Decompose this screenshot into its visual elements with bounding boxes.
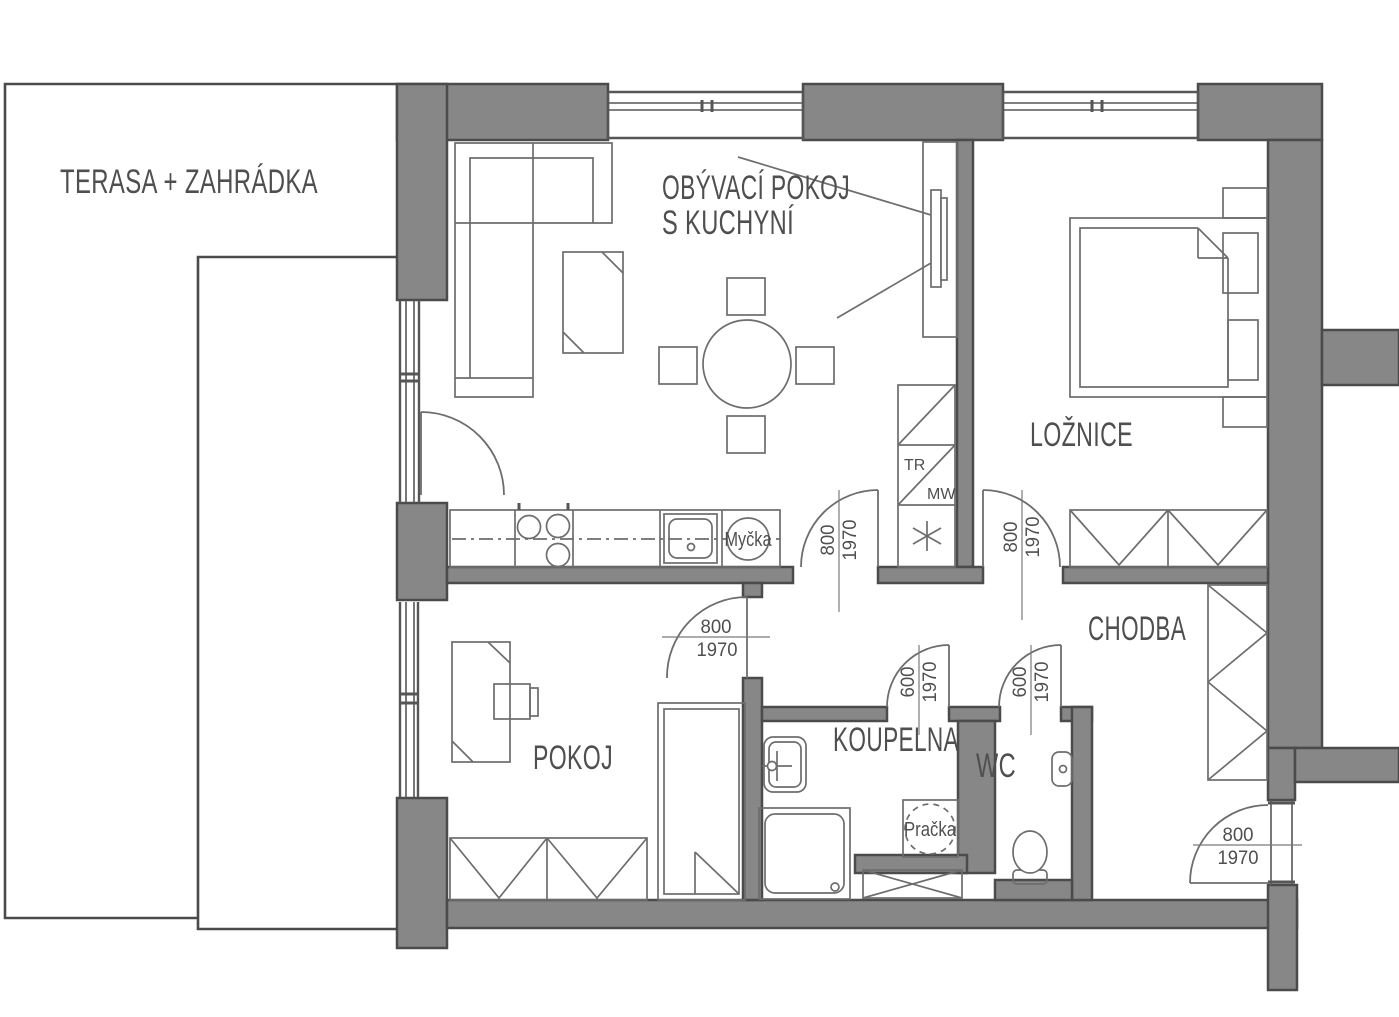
wall-bath-top-b [949,707,1000,721]
tall-unit-mw-label: MW [927,486,956,503]
bathroom-sink [762,737,806,792]
wall-right-stub-upper [1322,330,1399,385]
dim-entry-height: 1970 [1218,848,1259,869]
wc-label: WC [976,747,1016,785]
terrace-label: TERASA + ZAHRÁDKA [60,163,318,201]
single-bed [658,703,745,900]
dishwasher-label: Myčka [725,529,773,551]
terrace-garden: TERASA + ZAHRÁDKA [5,84,397,929]
door-pokoj: 800 1970 [662,597,770,678]
wall-right-main [1268,140,1322,748]
bedroom-wardrobe [1070,510,1267,567]
wall-bedroom-hall [1063,567,1268,583]
sink-tap [768,762,777,771]
washing-machine: Pračka [903,800,958,857]
wall-top-c [1198,84,1322,140]
terrace-door [421,412,504,495]
nightstand-bottom [1223,397,1267,427]
wall-bottom [447,900,1297,928]
wall-right-stub-lower [1295,748,1399,782]
dim-pokoj-width: 800 [701,617,732,638]
nightstand-top [1223,188,1267,218]
tv-back [941,198,947,280]
window-pokoj [399,602,418,797]
dim-pokoj-height: 1970 [697,640,738,661]
dining-table [703,320,791,408]
chair-bottom [727,416,765,453]
dim-bath-width: 600 [898,667,919,698]
terrace-outline [198,257,397,929]
dim-entry-width: 800 [1223,825,1254,846]
fridge-symbol [913,521,941,551]
dim-bath-height: 1970 [920,662,941,703]
window-bedroom-top [1003,92,1198,140]
cooktop [518,515,570,567]
wall-bath-top-a [762,707,887,721]
door-living-hall: 800 1970 [801,490,878,612]
hall-wardrobe [1208,585,1267,780]
tv-leader-lower [837,263,931,318]
door-bedroom: 800 1970 [983,490,1060,620]
living-room-label-line1: OBÝVACÍ POKOJ [662,169,850,207]
pokoj-wardrobe [450,838,647,900]
wall-right-below-entry [1268,885,1297,990]
dim-living-hall-height: 1970 [840,520,861,561]
dim-bedroom-height: 1970 [1023,517,1044,558]
window-terrace-door [399,300,419,503]
dim-living-hall-width: 800 [818,525,839,556]
shower-drain [831,883,839,891]
window-living-top [608,92,803,140]
wall-pokoj-stub [743,583,762,597]
chair-top [727,278,765,315]
wall-left-upper [397,84,447,300]
wall-left-mid [397,503,447,600]
coffee-table [563,252,623,353]
living-room-label-line2: S KUCHYNÍ [662,204,794,242]
wall-living-hall-b [878,567,983,583]
kitchen-tall-unit: TR MW [898,385,956,567]
hallway-label: CHODBA [1088,610,1186,648]
dim-wc-width: 600 [1010,667,1031,698]
entry-door: 800 1970 [1190,800,1302,885]
wall-bath-wc [958,721,995,873]
floor-plan: TERASA + ZAHRÁDKA [0,0,1399,1017]
wall-right-above-entry [1268,748,1295,800]
desk-chair-back [530,688,538,716]
dim-bedroom-width: 800 [1001,522,1022,553]
washing-machine-label: Pračka [904,819,957,841]
pokoj-label: POKOJ [533,739,613,777]
desk-chair [494,684,530,719]
tv-screen [931,190,941,287]
floor-plan-svg: TERASA + ZAHRÁDKA [0,0,1399,1017]
toilet [1013,831,1047,884]
shower [759,808,850,899]
double-bed [1070,218,1267,397]
dim-wc-height: 1970 [1032,662,1053,703]
tall-unit-tr-label: TR [904,457,925,474]
corner-sofa [455,143,612,397]
door-wc: 600 1970 [999,645,1061,735]
pillow-bottom [1228,320,1258,380]
wc-basin [1052,752,1072,786]
desk [452,642,538,762]
chair-left [659,347,697,384]
wall-wc-bottom [995,880,1072,900]
room-labels: OBÝVACÍ POKOJ S KUCHYNÍ LOŽNICE CHODBA P… [533,169,1186,785]
garden-outline [5,84,397,918]
chair-right [796,347,834,384]
wall-top-b [803,84,1003,140]
wall-left-lower [397,798,447,948]
wall-wc-right [1072,707,1092,900]
kitchen-counter: Myčka [450,503,780,567]
wall-living-bedroom [957,140,973,567]
bedroom-label: LOŽNICE [1030,416,1133,454]
bathroom-label: KOUPELNA [833,721,959,759]
wall-living-hall-a [447,567,793,583]
dining-set [659,278,834,453]
dishwasher: Myčka [725,518,773,560]
